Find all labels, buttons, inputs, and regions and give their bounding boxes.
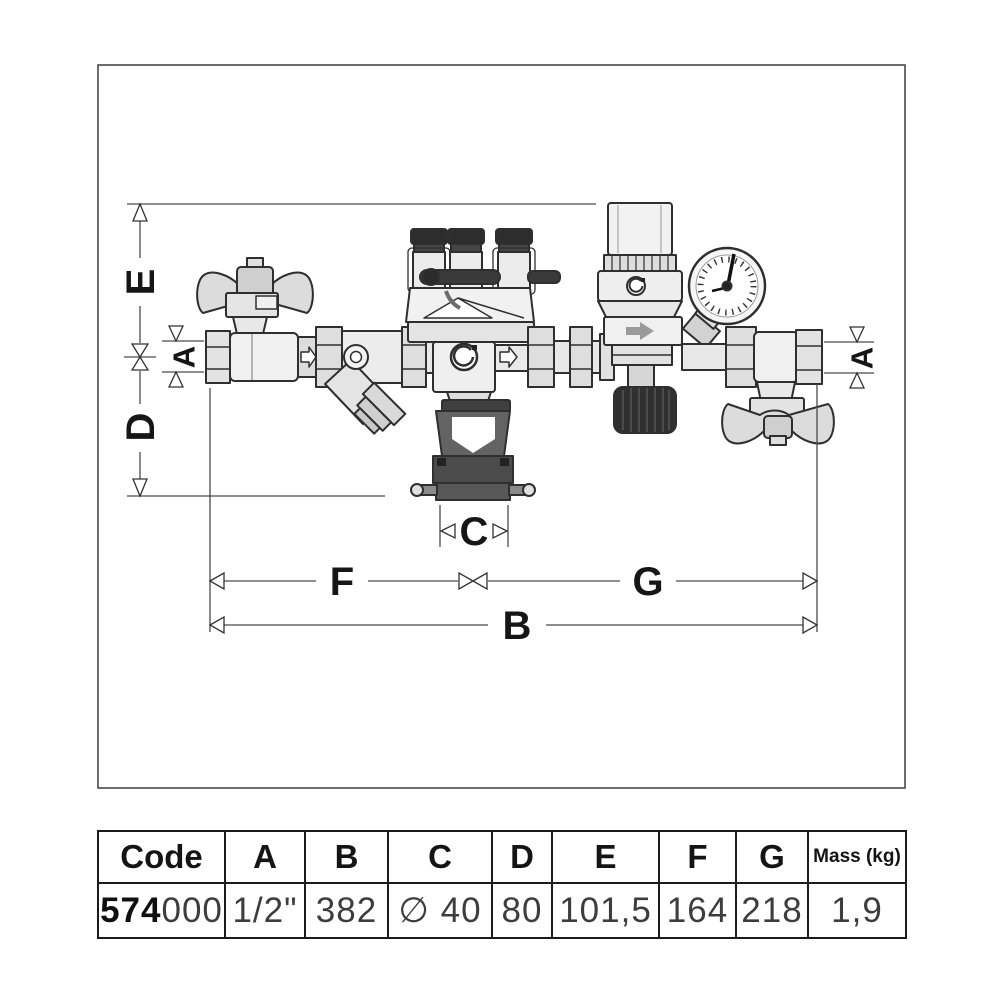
cell-g: 218 <box>737 884 809 937</box>
code-suffix: 000 <box>162 891 223 931</box>
col-header-b: B <box>306 832 389 884</box>
cell-e: 101,5 <box>553 884 660 937</box>
caleffi-logo-icon <box>451 344 477 370</box>
col-header-a: A <box>226 832 306 884</box>
col-header-c: C <box>389 832 493 884</box>
col-header-g: G <box>737 832 809 884</box>
table-header-row: Code A B C D E F G Mass (kg) <box>99 832 905 884</box>
col-header-e: E <box>553 832 660 884</box>
test-lever <box>420 269 560 285</box>
code-prefix: 574 <box>100 891 161 931</box>
col-header-f: F <box>660 832 737 884</box>
adjustment-knob <box>614 387 676 433</box>
dim-label-f: F <box>330 560 354 604</box>
dim-label-g: G <box>632 560 663 604</box>
cell-d: 80 <box>493 884 553 937</box>
dim-label-a-left: A <box>167 346 202 368</box>
cell-f: 164 <box>660 884 737 937</box>
dim-label-b: B <box>503 604 532 648</box>
dim-label-e: E <box>119 269 163 296</box>
col-header-d: D <box>493 832 553 884</box>
cell-a: 1/2" <box>226 884 306 937</box>
col-header-mass: Mass (kg) <box>809 832 905 884</box>
col-header-code: Code <box>99 832 226 884</box>
cell-b: 382 <box>306 884 389 937</box>
dim-label-a-right: A <box>845 347 880 369</box>
dim-label-c: C <box>460 510 489 554</box>
cell-mass: 1,9 <box>809 884 905 937</box>
caleffi-logo-icon <box>627 277 645 295</box>
dimension-table: Code A B C D E F G Mass (kg) 574000 1/2"… <box>97 830 907 939</box>
cell-c: ∅ 40 <box>389 884 493 937</box>
cell-code: 574000 <box>99 884 226 937</box>
table-value-row: 574000 1/2" 382 ∅ 40 80 101,5 164 218 1,… <box>99 884 905 937</box>
page: E D A A C F G B Code A B C D E F G Mass … <box>0 0 1000 1000</box>
dim-label-d: D <box>119 413 163 442</box>
